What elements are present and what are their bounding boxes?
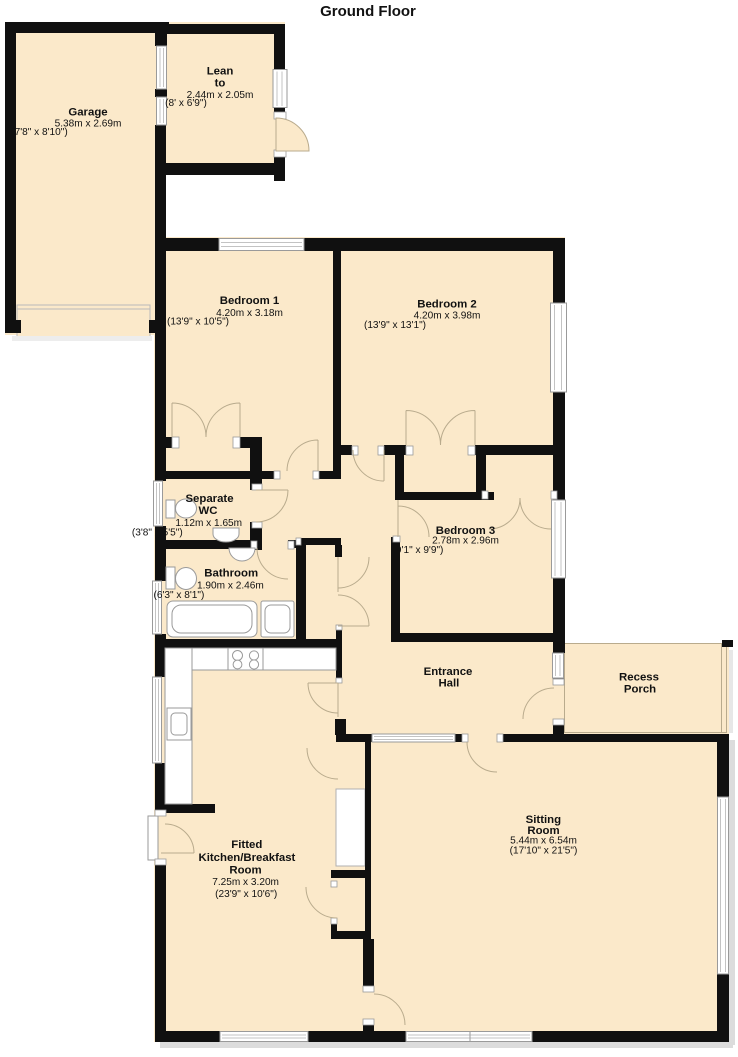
svg-text:Bedroom 2: Bedroom 2 [417, 299, 477, 311]
svg-text:Hall: Hall [438, 678, 459, 690]
svg-text:Ground Floor: Ground Floor [320, 3, 416, 20]
svg-text:Entrance: Entrance [424, 666, 473, 678]
svg-text:(3'8" x 5'5"): (3'8" x 5'5") [132, 528, 183, 539]
svg-text:WC: WC [199, 505, 218, 517]
svg-text:Separate: Separate [185, 493, 233, 505]
svg-text:Recess: Recess [619, 672, 659, 684]
svg-text:(9'1" x 9'9"): (9'1" x 9'9") [393, 545, 444, 556]
svg-text:Garage: Garage [68, 107, 107, 119]
svg-text:Bedroom 1: Bedroom 1 [220, 295, 280, 307]
svg-text:7.25m x 3.20m: 7.25m x 3.20m [212, 877, 279, 888]
svg-text:(13'9" x 13'1"): (13'9" x 13'1") [364, 320, 426, 331]
svg-text:1.90m x 2.46m: 1.90m x 2.46m [197, 581, 264, 592]
svg-text:to: to [215, 78, 226, 90]
svg-text:(7'8" x 8'10"): (7'8" x 8'10") [11, 127, 67, 138]
svg-text:(17'10" x 21'5"): (17'10" x 21'5") [510, 846, 578, 857]
svg-text:(23'9" x 10'6"): (23'9" x 10'6") [215, 889, 277, 900]
svg-text:Kitchen/Breakfast: Kitchen/Breakfast [198, 852, 295, 864]
svg-text:1.12m x 1.65m: 1.12m x 1.65m [175, 518, 242, 529]
svg-text:(13'9" x 10'5"): (13'9" x 10'5") [167, 317, 229, 328]
svg-text:Room: Room [229, 865, 261, 877]
svg-text:(8' x 6'9"): (8' x 6'9") [165, 98, 207, 109]
svg-text:Lean: Lean [207, 66, 234, 78]
svg-text:Porch: Porch [624, 683, 656, 695]
svg-text:Bathroom: Bathroom [204, 568, 258, 580]
svg-text:(6'3" x 8'1"): (6'3" x 8'1") [153, 590, 204, 601]
svg-text:Fitted: Fitted [231, 839, 262, 851]
